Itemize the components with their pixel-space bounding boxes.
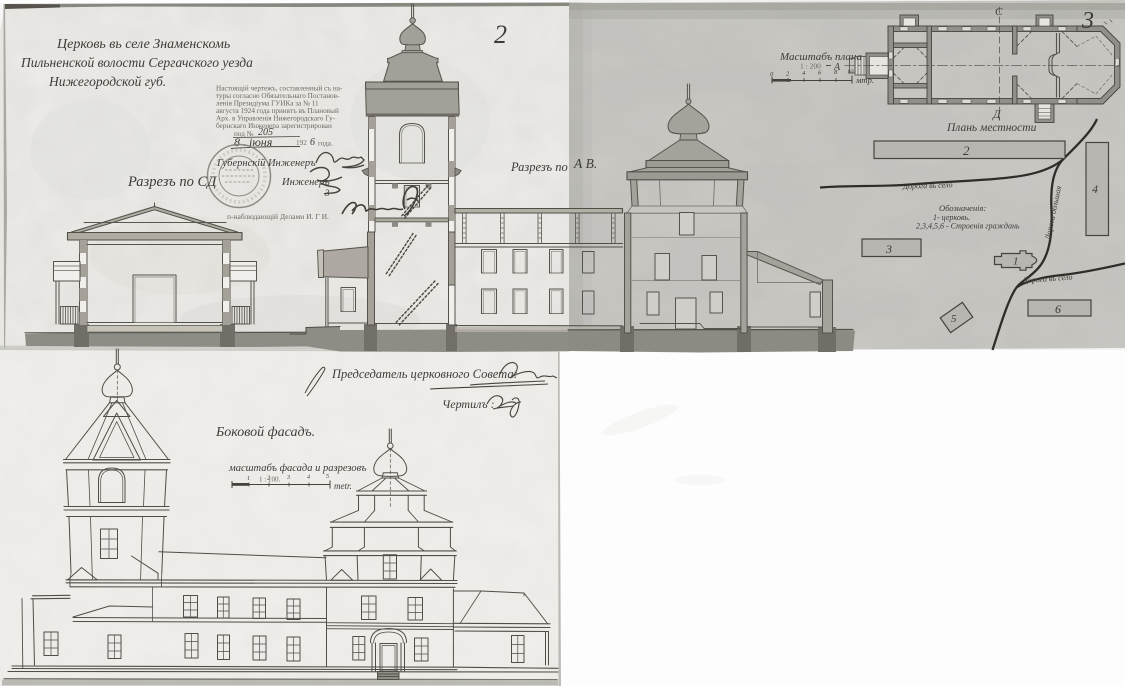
svg-text:Дорога вь село: Дорога вь село <box>902 180 953 191</box>
svg-text:192: 192 <box>296 139 307 147</box>
svg-text:Обозначенія:: Обозначенія: <box>939 203 986 213</box>
svg-text:масштабъ фасада и разрезовъ: масштабъ фасада и разрезовъ <box>228 463 367 474</box>
svg-text:C: C <box>995 6 1003 18</box>
svg-text:Боковой фасадъ.: Боковой фасадъ. <box>215 425 315 440</box>
svg-text:Нижегородской губ.: Нижегородской губ. <box>48 74 166 89</box>
svg-text:metr.: metr. <box>334 481 352 491</box>
svg-text:А В.: А В. <box>573 156 597 171</box>
svg-text:2: 2 <box>963 143 970 158</box>
svg-text:10: 10 <box>847 69 854 76</box>
svg-text:6: 6 <box>310 137 315 148</box>
svg-text:бернскаго Инженера зарегистрир: бернскаго Инженера зарегистрирован <box>216 122 332 130</box>
svg-text:Разрезъ по СД: Разрезъ по СД <box>127 174 217 190</box>
svg-text:Инженеръ: Инженеръ <box>281 177 330 188</box>
svg-text:п-наблюдающій Делами И. Г И.: п-наблюдающій Делами И. Г И. <box>227 212 329 221</box>
svg-text:Плань местности: Плань местности <box>946 122 1037 134</box>
svg-text:3: 3 <box>286 475 290 481</box>
svg-text:Губернскій Инженеръ: Губернскій Инженеръ <box>216 158 316 169</box>
svg-text:1: 1 <box>247 476 250 482</box>
svg-text:мтр.: мтр. <box>855 75 874 85</box>
svg-text:1: 1 <box>1013 256 1019 268</box>
svg-text:3: 3 <box>324 188 330 198</box>
svg-text:Разрезъ по: Разрезъ по <box>510 160 568 174</box>
svg-text:2: 2 <box>494 20 507 49</box>
svg-text:4: 4 <box>1092 182 1098 196</box>
svg-text:Церковь вь селе Знаменскомь: Церковь вь селе Знаменскомь <box>56 37 230 52</box>
svg-text:года.: года. <box>318 140 333 148</box>
svg-text:Пильненской волости Сергачског: Пильненской волости Сергачского уезда <box>20 55 253 70</box>
svg-text:Чертилъ :: Чертилъ : <box>442 397 495 411</box>
svg-text:Председатель церковного Совета: Председатель церковного Совета: <box>331 367 518 381</box>
svg-text:Д: Д <box>992 107 1002 121</box>
svg-text:2: 2 <box>267 476 270 482</box>
svg-text:5: 5 <box>951 313 957 325</box>
svg-text:6: 6 <box>1055 302 1061 316</box>
svg-text:4: 4 <box>307 474 310 481</box>
svg-text:2,3,4,5,6 - Строенія граждань: 2,3,4,5,6 - Строенія граждань <box>916 222 1020 231</box>
svg-text:3: 3 <box>885 242 892 256</box>
svg-text:5: 5 <box>326 474 329 480</box>
svg-text:3: 3 <box>1081 8 1094 34</box>
